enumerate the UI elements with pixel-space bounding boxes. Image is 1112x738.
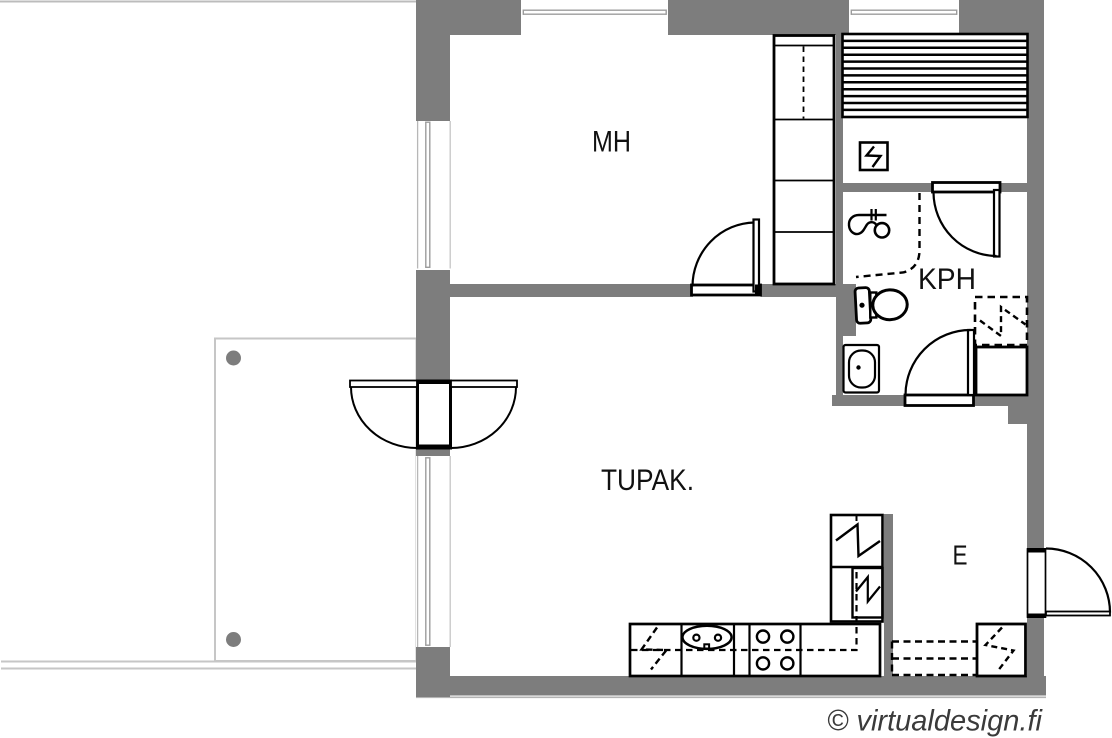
svg-text:MH: MH [592, 126, 631, 159]
svg-text:E: E [953, 540, 968, 571]
svg-text:© virtualdesign.fi: © virtualdesign.fi [827, 705, 1043, 738]
svg-text:TUPAK.: TUPAK. [601, 464, 694, 497]
svg-text:KPH: KPH [918, 263, 976, 296]
